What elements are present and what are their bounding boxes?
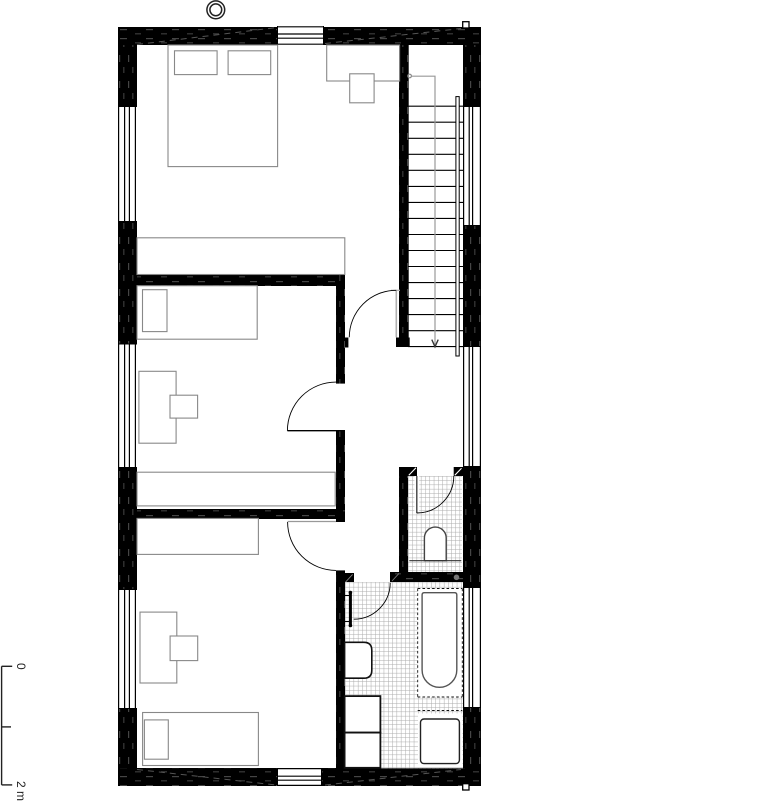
svg-text:0: 0: [14, 663, 28, 670]
svg-text:2 m: 2 m: [14, 781, 28, 801]
